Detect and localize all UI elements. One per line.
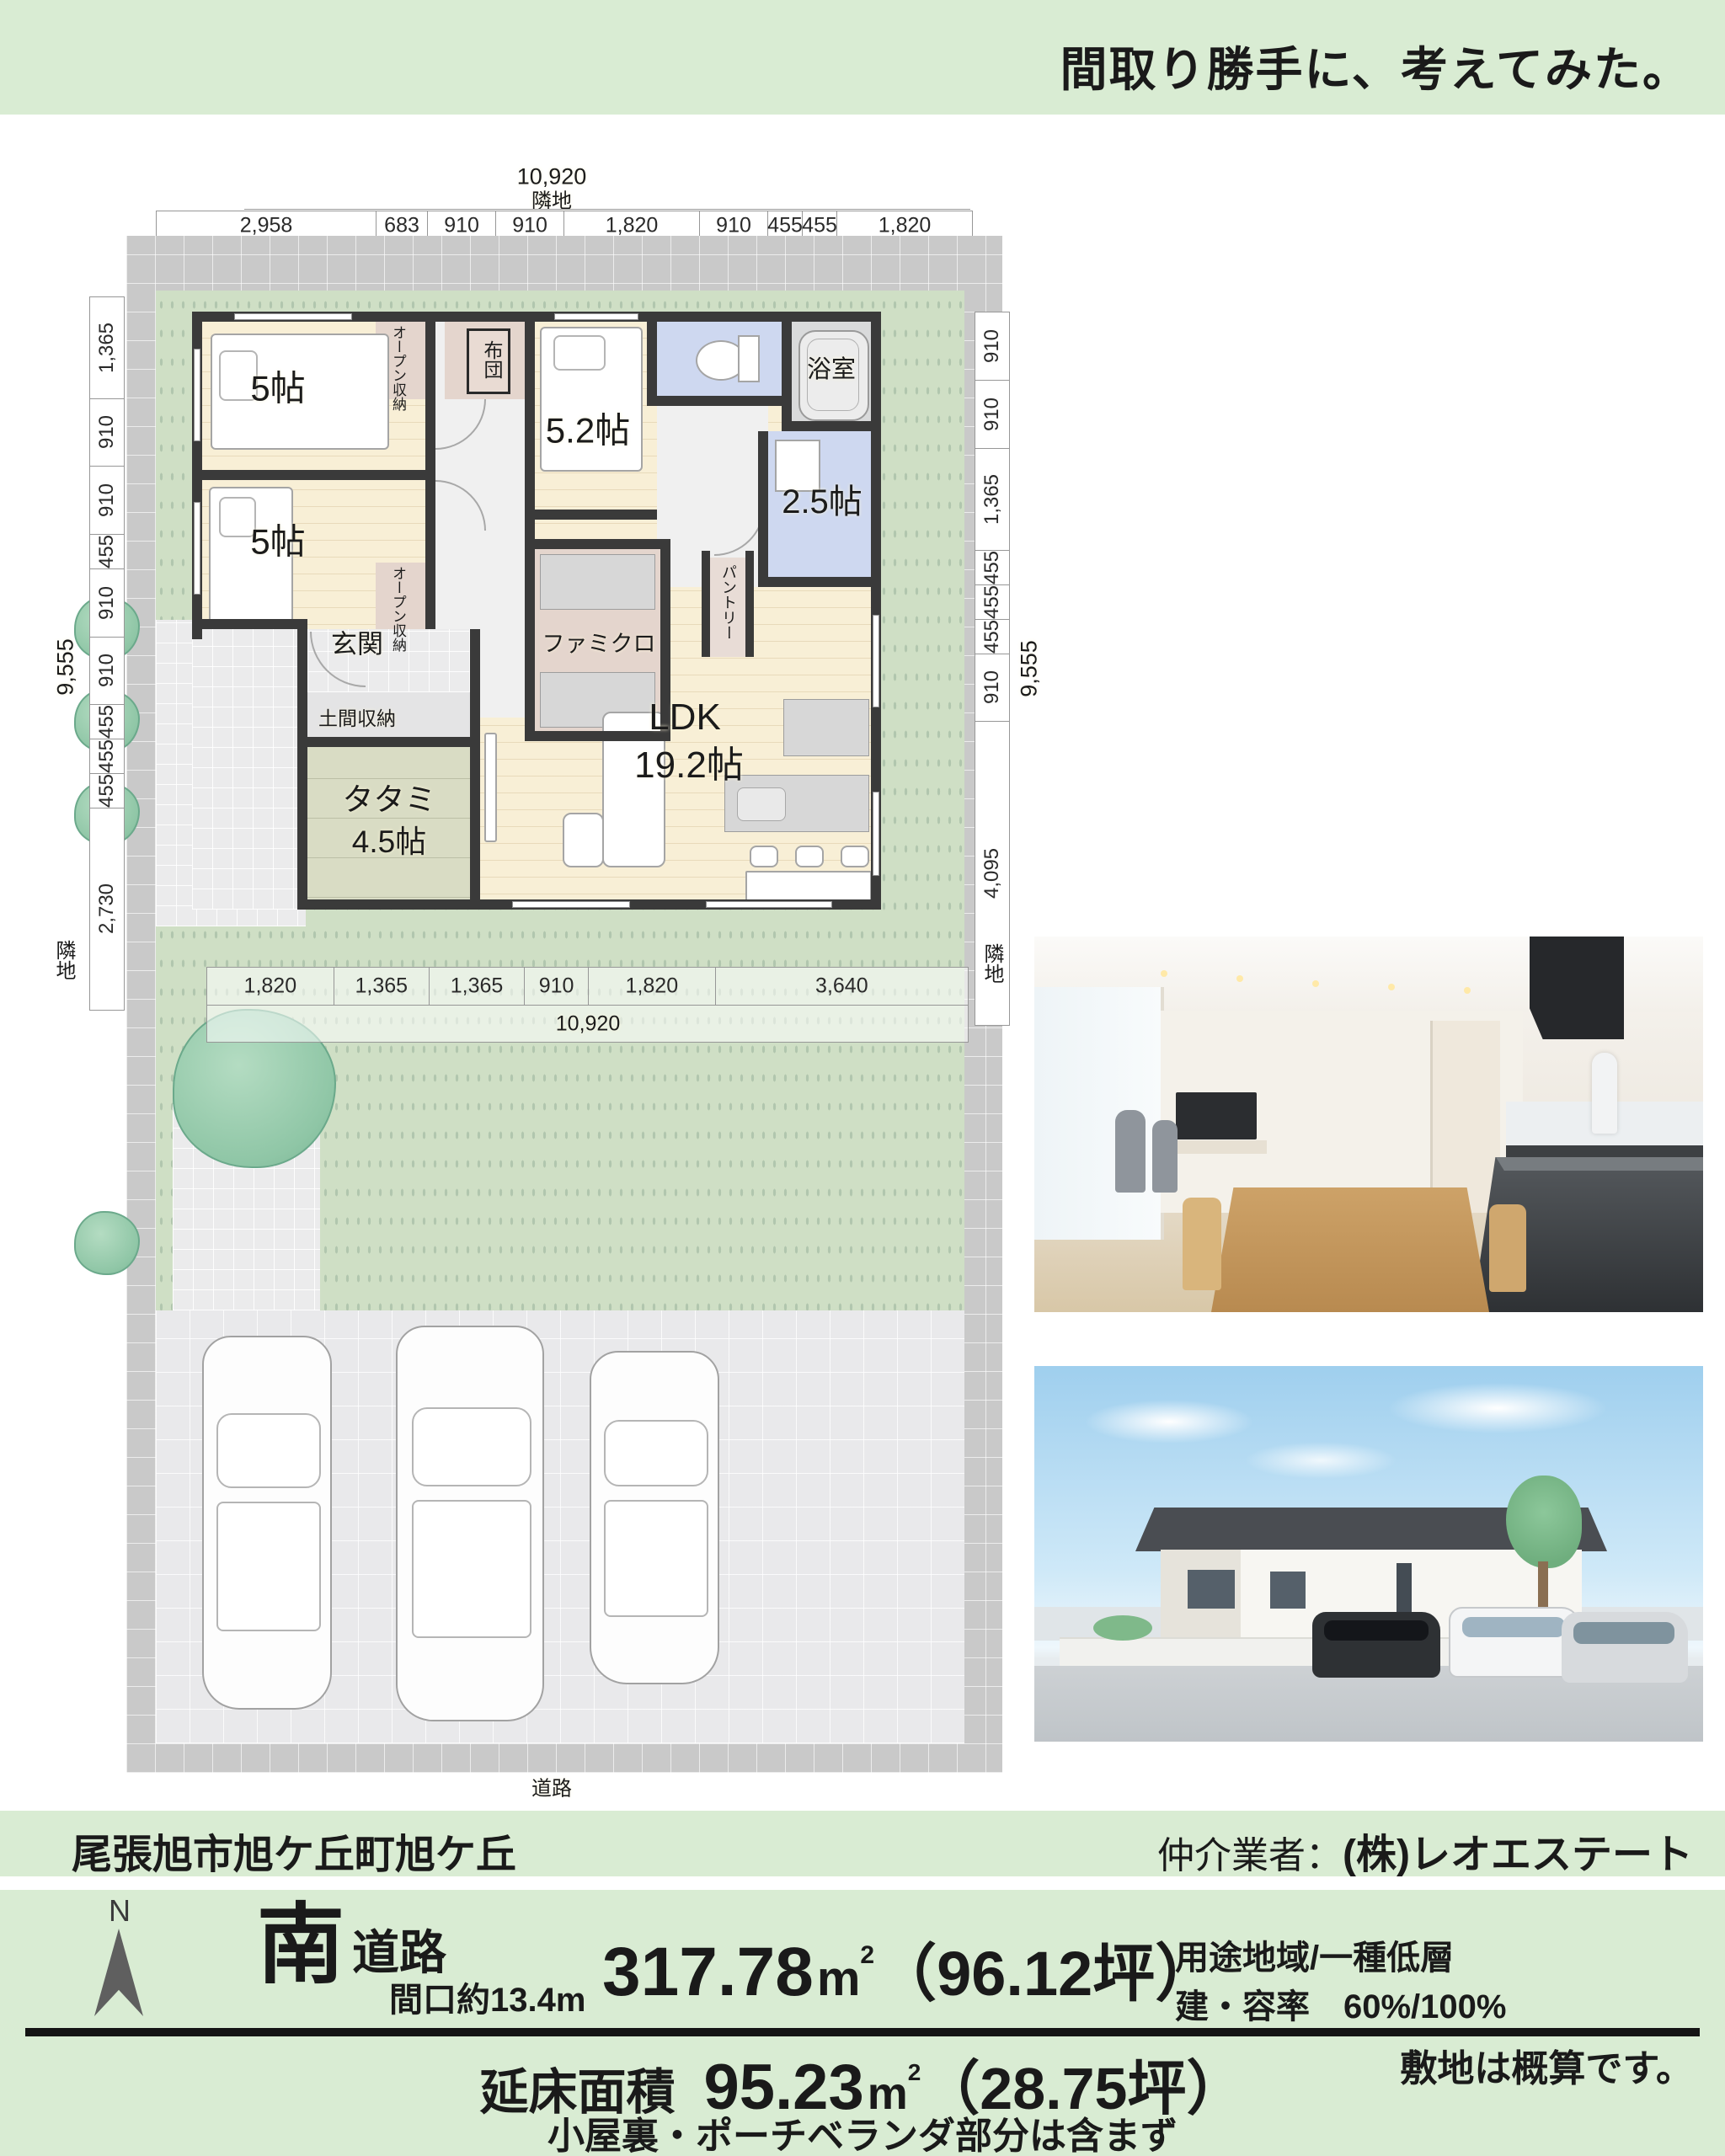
room-label-bedroom3: 5帖 [250, 514, 305, 565]
compass-arrow-icon [94, 1929, 143, 2016]
car-windows [1324, 1620, 1429, 1641]
dim-value: 910 [95, 654, 119, 687]
wall [758, 431, 768, 587]
dim-value: 910 [716, 214, 751, 238]
render-car-silver [1562, 1612, 1688, 1683]
dim-value: 910 [95, 586, 119, 620]
land-area-value: 317.78 [602, 1933, 814, 2012]
chair-icon [841, 846, 869, 867]
dim-value: 455 [95, 739, 119, 773]
land-area-unit: m [817, 1951, 861, 2007]
room-label-tatami-size: 4.5帖 [352, 816, 426, 862]
dim-value: 1,365 [355, 974, 409, 999]
car-icon [590, 1351, 719, 1684]
downlight-icons [1161, 970, 1167, 977]
render-tree [1506, 1476, 1582, 1568]
room-label-open-storage2: オープン収納 [387, 566, 409, 638]
dim-top-bracket-line [244, 209, 970, 210]
room-label-bedroom1: 5帖 [250, 360, 305, 412]
dim-value: 910 [512, 214, 547, 238]
car-icon [202, 1336, 332, 1710]
wall [525, 312, 535, 741]
divider-line [25, 2028, 1700, 2036]
car-icon [396, 1326, 544, 1721]
window-icon [512, 901, 630, 908]
wall [782, 312, 792, 431]
window-icon [194, 502, 200, 595]
car-windshield [216, 1413, 321, 1488]
address-band: 尾張旭市旭ケ丘町旭ケ丘 仲介業者：(株)レオエステート [0, 1811, 1725, 1876]
dim-row-bottom: 1,820 1,365 1,365 910 1,820 3,640 [206, 967, 969, 1006]
window-icon [873, 615, 879, 707]
sofa-icon [563, 813, 604, 867]
cloud-icon [1388, 1383, 1607, 1433]
top-banner: 間取り勝手に、考えてみた。 [0, 0, 1725, 115]
dim-col-right: 910 910 1,365 455 455 455 910 4,095 [975, 312, 1010, 1026]
dim-value: 910 [980, 670, 1004, 704]
dim-value: 2,958 [240, 214, 293, 238]
render-chair [1489, 1204, 1526, 1292]
dim-value: 910 [95, 415, 119, 449]
dim-right-total: 9,555 [1017, 640, 1043, 697]
pillow-icon [553, 335, 606, 371]
dim-value: 910 [444, 214, 479, 238]
wall [535, 539, 670, 549]
car-windshield [604, 1420, 708, 1486]
render-tv [1176, 1092, 1257, 1139]
wall [470, 629, 480, 737]
interior-render [1034, 937, 1703, 1312]
window-icon [873, 792, 879, 876]
car-windows [1462, 1617, 1565, 1637]
render-bush [1093, 1615, 1152, 1641]
window-icon [554, 313, 638, 320]
dim-value: 910 [980, 398, 1004, 431]
wall [535, 510, 657, 520]
land-area-unit-sup: 2 [860, 1941, 874, 1970]
road-label: 道路 [531, 1772, 572, 1801]
dim-bottom-total: 10,920 [556, 1012, 620, 1037]
dim-value: 1,365 [980, 474, 1004, 525]
wall [470, 737, 480, 910]
building: 5帖 5帖 5.2帖 オープン収納 オープン収納 布団 浴室 2.5帖 パントリ… [192, 312, 881, 910]
broker-line: 仲介業者：(株)レオエステート [1157, 1821, 1693, 1880]
room-label-ldk-size: 19.2帖 [634, 734, 744, 788]
dim-value: 1,820 [626, 974, 679, 999]
dim-value: 910 [539, 974, 574, 999]
dim-value: 455 [802, 214, 837, 238]
broker-label: 仲介業者： [1157, 1835, 1343, 1876]
room-label-futon: 布団 [478, 340, 506, 379]
wall [647, 312, 657, 406]
car-windows [1573, 1622, 1674, 1644]
dim-value: 683 [384, 214, 419, 238]
room-label-entrance-storage: 土間収納 [318, 702, 396, 731]
site-plan: 10,920 隣地 2,958 683 910 910 1,820 910 45… [0, 115, 1028, 1816]
room-label-ldk: LDK [649, 696, 721, 739]
render-island-top [1496, 1157, 1703, 1171]
closet-cabinet-icon [540, 554, 655, 610]
porch-notch [192, 629, 297, 910]
cloud-icon [1085, 1400, 1253, 1444]
person-silhouette [1152, 1120, 1178, 1193]
kitchen-cupboard-icon [783, 699, 869, 756]
floor-area-unit-sup: 2 [908, 2059, 921, 2086]
exterior-render [1034, 1366, 1703, 1742]
dim-value: 455 [95, 705, 119, 739]
dim-value: 455 [980, 551, 1004, 584]
dim-col-left: 1,365 910 910 455 910 910 455 455 455 2,… [89, 296, 125, 1011]
floor-area-note: 小屋裏・ポーチベランダ部分は含まず [547, 2105, 1178, 2156]
dim-value: 455 [980, 585, 1004, 619]
render-tv-board [1166, 1140, 1267, 1154]
wall [782, 421, 881, 431]
frontage: 間口約13.4m [389, 1972, 585, 2021]
flyer-page: 間取り勝手に、考えてみた。 10,920 隣地 2,958 683 910 91… [0, 0, 1725, 2156]
zoning: 用途地域/一種低層 [1175, 1930, 1454, 1979]
compass-n-label: N [94, 1893, 145, 1929]
dim-value: 1,820 [244, 974, 297, 999]
dim-value: 455 [980, 620, 1004, 654]
toilet-tank-icon [738, 335, 760, 382]
building-coverage-ratio: 建・容率 60%/100% [1175, 1979, 1506, 2028]
render-tree-trunk [1538, 1561, 1548, 1612]
details-band: N 南 道路 間口約13.4m 317.78 m 2 （96.12坪） 用途地域… [0, 1890, 1725, 2156]
render-window [1270, 1572, 1306, 1609]
car-roof [412, 1500, 531, 1638]
kitchen-island-icon [724, 775, 869, 832]
wall [192, 470, 425, 480]
wall [425, 312, 435, 629]
banner-title: 間取り勝手に、考えてみた。 [1060, 32, 1691, 100]
dim-value: 1,365 [451, 974, 504, 999]
chair-icon [795, 846, 824, 867]
land-area-line: 317.78 m 2 （96.12坪） [602, 1924, 1217, 2014]
road-direction: 南 [257, 1902, 344, 1989]
window-icon [234, 313, 352, 320]
shrub-icon [74, 1211, 140, 1275]
car-roof [216, 1502, 321, 1631]
dim-value: 1,365 [95, 323, 119, 373]
room-label-bath: 浴室 [807, 350, 856, 385]
dim-value: 455 [95, 535, 119, 568]
site-note: 敷地は概算です。 [1400, 2038, 1693, 2092]
room-label-open-storage1: オープン収納 [387, 325, 409, 398]
land-area-tsubo: （96.12坪） [874, 1924, 1217, 2014]
dim-value: 4,095 [980, 848, 1004, 899]
room-label-bedroom2: 5.2帖 [546, 403, 630, 454]
window-icon [706, 901, 832, 908]
dim-value: 1,820 [879, 214, 932, 238]
render-car-dark [1312, 1612, 1440, 1678]
person-silhouette [1592, 1053, 1617, 1134]
window-icon [194, 349, 200, 441]
adjacent-label-left: 隣地 [49, 940, 78, 980]
wall [758, 577, 881, 587]
render-window-wall [1034, 987, 1164, 1240]
broker-name: (株)レオエステート [1343, 1833, 1693, 1877]
wall [192, 619, 307, 629]
render-chair [1183, 1198, 1221, 1290]
car-roof [604, 1500, 708, 1617]
room-label-tatami: タタミ [343, 774, 436, 819]
cloud-icon [1245, 1442, 1397, 1479]
sink-icon [737, 787, 786, 821]
dim-value: 910 [980, 329, 1004, 363]
dim-left-total: 9,555 [53, 638, 79, 696]
render-hall-door [1430, 1021, 1500, 1213]
adjacent-label-right: 隣地 [977, 943, 1007, 984]
room-label-pantry: パントリー [718, 564, 740, 640]
wall [745, 551, 754, 657]
render-window [1188, 1570, 1235, 1609]
dim-value: 455 [767, 214, 803, 238]
room-label-family-closet: ファミクロ [542, 626, 656, 659]
dim-bottom-total-box: 10,920 [206, 1006, 969, 1043]
dim-value: 2,730 [95, 883, 119, 934]
tv-board-icon [484, 733, 497, 842]
wall [702, 551, 710, 657]
dim-value: 455 [95, 774, 119, 808]
render-car-white [1449, 1607, 1580, 1678]
car-windshield [412, 1407, 531, 1486]
room-label-entrance: 玄関 [331, 623, 383, 661]
person-silhouette [1115, 1110, 1146, 1193]
room-label-washroom: 2.5帖 [782, 474, 862, 523]
wall [307, 737, 480, 747]
render-range-hood [1530, 937, 1624, 1039]
dim-value: 1,820 [606, 214, 659, 238]
wall [657, 396, 782, 406]
futon-closet-box: 布団 [467, 328, 510, 394]
render-dining-table [1211, 1187, 1489, 1312]
chair-icon [750, 846, 778, 867]
wall [297, 619, 307, 910]
property-address: 尾張旭市旭ケ丘町旭ケ丘 [72, 1821, 516, 1880]
dim-value: 910 [95, 483, 119, 517]
dim-value: 3,640 [815, 974, 868, 999]
